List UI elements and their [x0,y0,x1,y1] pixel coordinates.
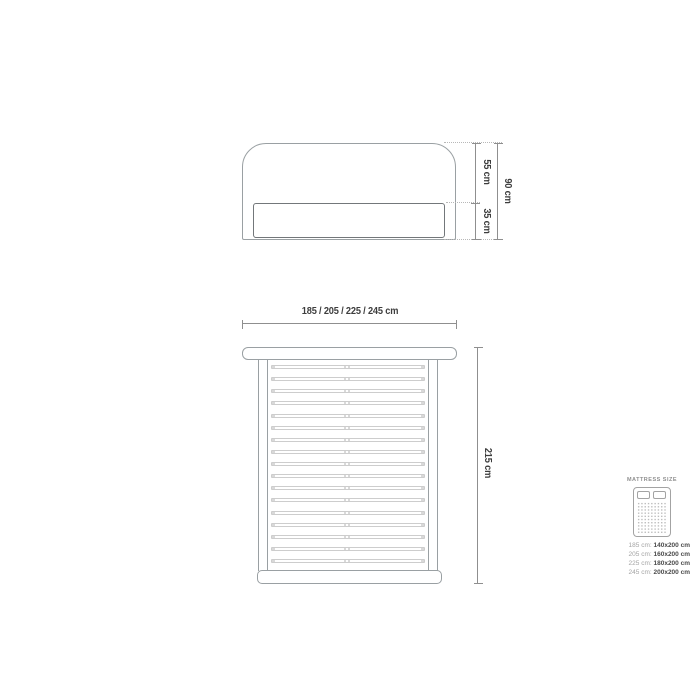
mattress-size-value: 180x200 cm [653,560,690,567]
frame-width-label: 225 cm: [629,560,654,567]
frame-width-label: 205 cm: [629,551,654,558]
bed-slat [271,486,425,490]
pillow-icon [637,491,650,499]
slat-center-connector [344,560,346,562]
mattress-size-value: 140x200 cm [653,542,690,549]
headboard-top-outline [242,347,457,360]
bed-slat [271,401,425,405]
slat-center-connector [344,499,346,501]
legend-row: 185 cm: 140x200 cm [602,541,690,550]
dimension-line-55-35 [475,143,476,240]
legend-title: MATTRESS SIZE [606,477,698,483]
slat-center-connector [344,524,346,526]
bed-slat [271,414,425,418]
slat-center-connector [344,378,346,380]
slat-center-connector [344,548,346,550]
dimension-label-215cm: 215 cm [481,441,495,485]
slat-center-connector [344,487,346,489]
slat-center-connector [344,512,346,514]
slat-center-connector [344,439,346,441]
mattress-icon [633,487,671,537]
side-rail-left [258,359,268,571]
legend-row: 205 cm: 160x200 cm [602,550,690,559]
bed-slat [271,426,425,430]
slat-area [271,365,425,563]
dimension-label-90cm: 90 cm [501,169,515,213]
dimension-tick-middle [471,203,480,204]
mattress-size-value: 200x200 cm [653,569,690,576]
mattress-dot-grid [637,502,667,533]
slat-center-connector [344,475,346,477]
slat-center-connector [344,427,346,429]
dimension-label-width: 185 / 205 / 225 / 245 cm [262,304,438,318]
slat-center-connector [344,463,346,465]
dimension-label-35cm: 35 cm [480,199,494,243]
bed-dimension-diagram: 55 cm 35 cm 90 cm 185 / 205 / 225 / 245 … [0,0,700,700]
slat-center-connector [344,415,346,417]
slat-center-connector [344,451,346,453]
slat-center-connector [344,536,346,538]
bed-slat [271,559,425,563]
bed-slat [271,498,425,502]
bed-slat [271,462,425,466]
dimension-line-90 [497,143,498,240]
slat-center-connector [344,366,346,368]
bed-slat [271,547,425,551]
slat-center-connector [344,402,346,404]
frame-width-label: 245 cm: [629,569,654,576]
bed-slat [271,438,425,442]
mattress-size-value: 160x200 cm [653,551,690,558]
dimension-line-length [477,347,478,584]
bed-slat [271,535,425,539]
legend-row: 225 cm: 180x200 cm [602,559,690,568]
mattress-size-rows: 185 cm: 140x200 cm205 cm: 160x200 cm225 … [602,541,690,577]
bed-slat [271,389,425,393]
bed-slat [271,511,425,515]
bed-slat [271,450,425,454]
bed-base-front-outline [253,203,445,238]
slat-center-connector [344,390,346,392]
footboard-outline [257,570,442,584]
side-rail-right [428,359,438,571]
bed-slat [271,365,425,369]
frame-width-label: 185 cm: [629,542,654,549]
bed-slat [271,474,425,478]
dimension-line-width [242,323,457,324]
bed-slat [271,377,425,381]
dimension-label-55cm: 55 cm [480,150,494,194]
bed-slat [271,523,425,527]
legend-row: 245 cm: 200x200 cm [602,568,690,577]
pillow-icon [653,491,666,499]
